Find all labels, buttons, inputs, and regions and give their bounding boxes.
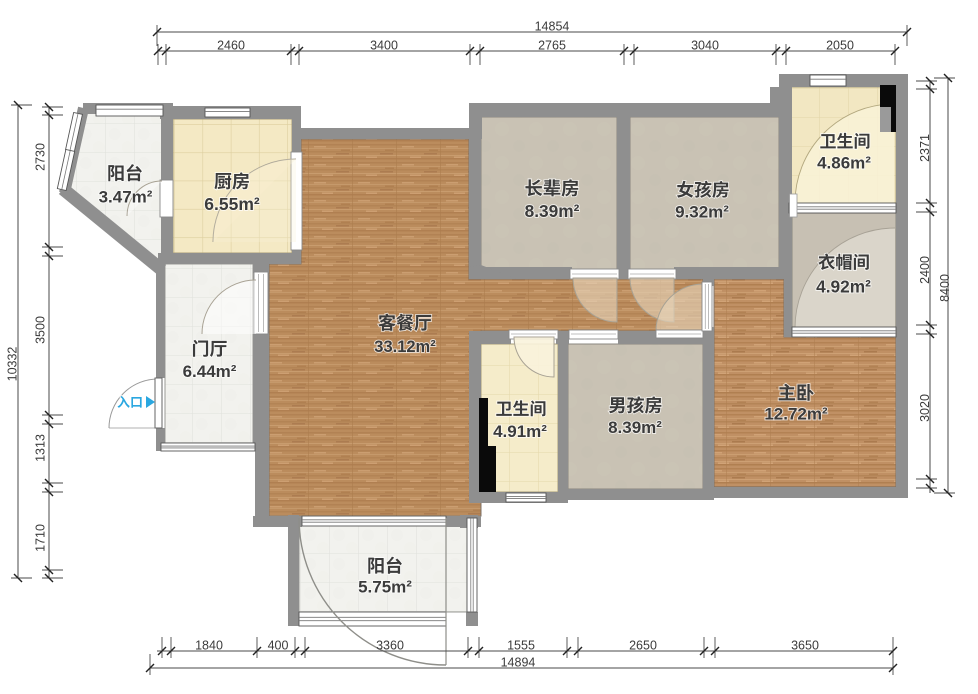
svg-text:3.47m²: 3.47m² [99, 188, 153, 207]
svg-text:1710: 1710 [34, 524, 48, 552]
svg-text:400: 400 [268, 638, 289, 652]
svg-text:6.55m²: 6.55m² [204, 194, 260, 214]
svg-text:1555: 1555 [507, 638, 535, 652]
svg-text:12.72m²: 12.72m² [764, 405, 828, 424]
svg-text:4.92m²: 4.92m² [816, 277, 871, 297]
svg-text:3650: 3650 [791, 638, 819, 652]
svg-text:8.39m²: 8.39m² [608, 418, 662, 437]
svg-text:3360: 3360 [376, 638, 404, 652]
svg-text:2765: 2765 [538, 39, 566, 53]
svg-text:2371: 2371 [918, 134, 932, 162]
svg-text:10332: 10332 [6, 347, 20, 382]
svg-text:2650: 2650 [629, 638, 657, 652]
svg-text:2050: 2050 [826, 39, 854, 53]
svg-text:3500: 3500 [34, 316, 48, 344]
svg-text:4.86m²: 4.86m² [817, 154, 871, 173]
svg-text:1840: 1840 [195, 638, 223, 652]
svg-text:14894: 14894 [501, 655, 536, 669]
svg-text:1313: 1313 [34, 434, 48, 462]
svg-text:33.12m²: 33.12m² [374, 338, 436, 356]
svg-text:3040: 3040 [691, 39, 719, 53]
svg-text:2730: 2730 [34, 143, 48, 171]
svg-text:9.32m²: 9.32m² [675, 203, 729, 222]
svg-text:14854: 14854 [535, 20, 570, 34]
svg-text:2400: 2400 [918, 256, 932, 284]
svg-text:2460: 2460 [217, 39, 245, 53]
svg-text:5.75m²: 5.75m² [358, 578, 412, 597]
svg-text:3400: 3400 [370, 39, 398, 53]
svg-text:8.39m²: 8.39m² [525, 201, 580, 221]
svg-text:4.91m²: 4.91m² [493, 422, 547, 441]
svg-text:8400: 8400 [938, 274, 952, 302]
svg-text:3020: 3020 [918, 394, 932, 422]
svg-text:6.44m²: 6.44m² [183, 362, 237, 381]
